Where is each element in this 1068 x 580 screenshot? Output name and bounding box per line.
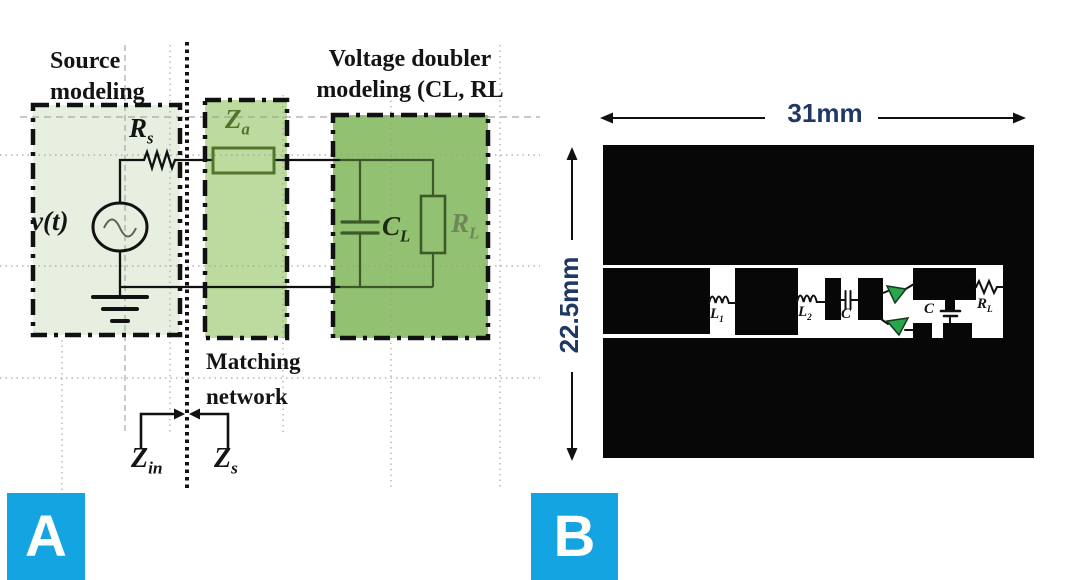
panel-b-pcb	[567, 113, 1035, 462]
pad-3	[825, 278, 841, 320]
figure-canvas: Source modeling Voltage doubler modeling…	[0, 0, 1068, 580]
height-dimension-label: 22.5mm	[554, 240, 582, 370]
l2-main: L	[798, 304, 807, 320]
cl-sub: L	[400, 226, 410, 245]
panel-a-badge: A	[7, 493, 85, 580]
matching-network-label: Matching network	[206, 344, 301, 414]
rl-pcb-main: R	[977, 296, 987, 312]
zin-main: Z	[131, 443, 148, 474]
rs-sub: s	[147, 128, 154, 147]
pad-5	[913, 323, 932, 339]
l2-sub: 2	[807, 313, 812, 323]
c-shunt-label: C	[924, 301, 934, 318]
c-series-label: C	[841, 306, 851, 323]
doubler-title-line2: modeling (CL, RL	[295, 75, 525, 106]
zin-label: Zin	[131, 443, 163, 475]
zs-label: Zs	[214, 443, 238, 475]
za-sub: a	[242, 119, 250, 138]
pad-2	[735, 268, 798, 335]
panel-b-badge: B	[531, 493, 618, 580]
rl-sub: L	[469, 223, 479, 242]
pad-4	[858, 278, 883, 320]
rs-main: R	[129, 113, 147, 143]
vt-source-label: v(t)	[31, 206, 68, 237]
l1-main: L	[710, 306, 719, 322]
output-pad	[913, 268, 976, 300]
cl-label: CL	[382, 211, 410, 242]
za-main: Z	[225, 104, 242, 134]
feed-pad	[603, 268, 710, 334]
source-title-line1: Source	[50, 46, 145, 77]
doubler-title-line1: Voltage doubler	[295, 44, 525, 75]
l1-label: L1	[710, 306, 724, 323]
matching-label-line1: Matching	[206, 344, 301, 379]
l1-sub: 1	[719, 315, 724, 325]
cap-tab-pad	[945, 298, 955, 311]
width-dimension-label: 31mm	[770, 98, 880, 129]
rl-main: R	[451, 208, 469, 238]
rl-pcb-sub: L	[987, 305, 993, 315]
rl-label-pcb: RL	[977, 296, 993, 313]
source-title-line2: modeling	[50, 77, 145, 108]
zin-sub: in	[148, 459, 162, 478]
l2-label: L2	[798, 304, 812, 321]
zs-main: Z	[214, 443, 231, 474]
za-label: Za	[225, 104, 250, 135]
panel-a-schematic	[0, 42, 540, 490]
zs-sub: s	[231, 459, 238, 478]
pad-6	[943, 323, 972, 339]
voltage-doubler-title: Voltage doubler modeling (CL, RL	[295, 44, 525, 106]
matching-label-line2: network	[206, 379, 301, 414]
source-modeling-title: Source modeling	[50, 46, 145, 108]
cl-main: C	[382, 211, 400, 241]
rl-label-schematic: RL	[451, 208, 479, 239]
rs-label: Rs	[129, 113, 154, 144]
